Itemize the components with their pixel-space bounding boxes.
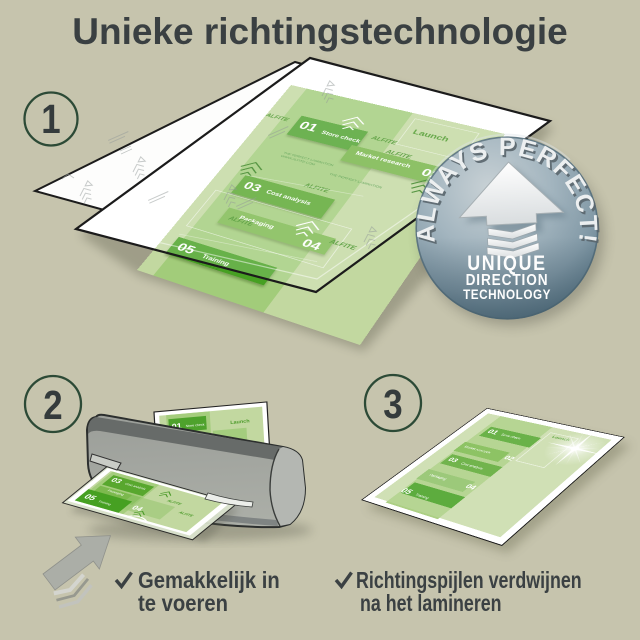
svg-text:TECHNOLOGY: TECHNOLOGY: [463, 286, 551, 302]
svg-text:2: 2: [43, 383, 62, 428]
svg-text:1: 1: [41, 97, 60, 142]
svg-text:3: 3: [383, 382, 402, 427]
svg-text:te voeren: te voeren: [138, 590, 228, 617]
svg-text:na het lamineren: na het lamineren: [360, 591, 502, 617]
svg-text:Richtingspijlen verdwijnen: Richtingspijlen verdwijnen: [356, 568, 582, 594]
